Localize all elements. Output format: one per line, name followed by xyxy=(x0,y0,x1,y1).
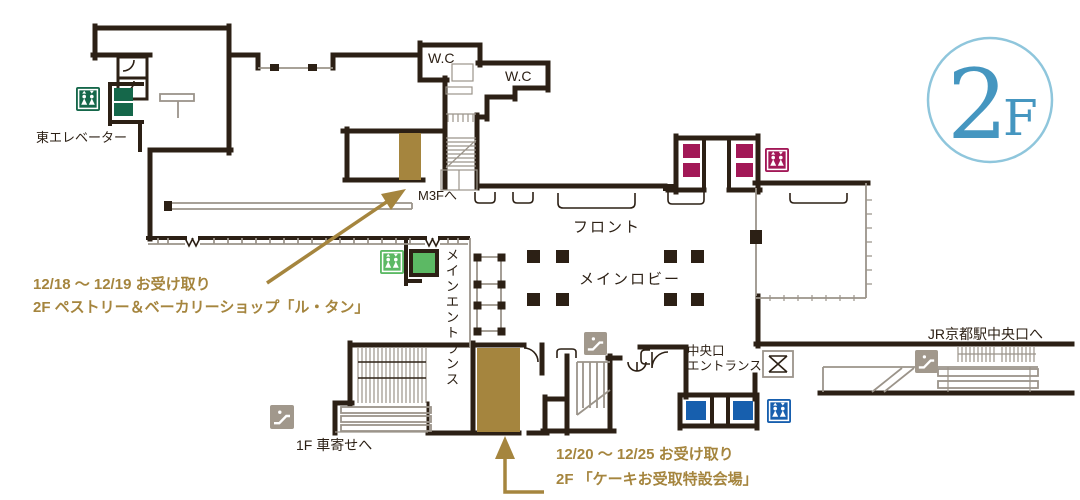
center-escalator-well xyxy=(577,362,610,415)
jr-kyoto-label: JR京都駅中央口へ xyxy=(928,326,1043,342)
lobby-elevator-icon xyxy=(765,148,789,172)
central-entrance-label-2: エントランス xyxy=(687,359,762,373)
front-desk-counter xyxy=(558,193,635,208)
central-entrance-label-1: 中央口 xyxy=(687,343,725,358)
cake-pickup-area xyxy=(477,348,520,432)
front-desk-label: フロント xyxy=(573,219,641,236)
main-entrance-label: メインエントランス xyxy=(444,248,459,388)
east-elevator-icon xyxy=(76,87,100,111)
cake-pickup-date: 12/20 ～ 12/25 お受け取り xyxy=(556,445,734,463)
pastry-pickup-area xyxy=(399,133,421,180)
east-elevator-label: 東エレベーター xyxy=(36,130,127,145)
porch-escalator-icon xyxy=(270,405,294,429)
lounge-room xyxy=(750,183,872,301)
pastry-pickup-place: 2F ペストリー＆ベーカリーショップ「ル・タン」 xyxy=(33,298,369,316)
m3f-label: M3Fへ xyxy=(418,188,457,203)
entrance-colonnade xyxy=(474,254,506,336)
floor-map-2f: 東エレベーター W.C W.C M3Fへ フロント メインロビー メインエントラ… xyxy=(0,0,1080,500)
floor-badge-suffix: F xyxy=(1003,89,1038,147)
main-lobby-label: メインロビー xyxy=(579,271,681,288)
floor-badge: 2 F xyxy=(928,38,1052,162)
floor-badge-number: 2 xyxy=(947,49,1008,161)
lobby-escalator-icon xyxy=(584,332,607,355)
pastry-pickup-date: 12/18 ～ 12/19 お受け取り xyxy=(33,275,211,293)
jr-escalator-icon xyxy=(915,350,938,373)
cake-arrow xyxy=(495,436,544,492)
entrance-elevator-icon xyxy=(380,250,404,274)
revolving-door xyxy=(763,351,793,377)
wc-left-label: W.C xyxy=(428,50,454,66)
central-elevator-icon xyxy=(767,399,791,423)
wc-right-label: W.C xyxy=(505,68,531,84)
elevator-shafts xyxy=(114,88,753,420)
walls-thin xyxy=(123,60,1038,432)
wc-fixtures xyxy=(446,64,473,94)
to-1f-porch-label: 1F 車寄せへ xyxy=(296,437,372,453)
cake-pickup-place: 2F 「ケーキお受取特設会場」 xyxy=(556,470,758,488)
